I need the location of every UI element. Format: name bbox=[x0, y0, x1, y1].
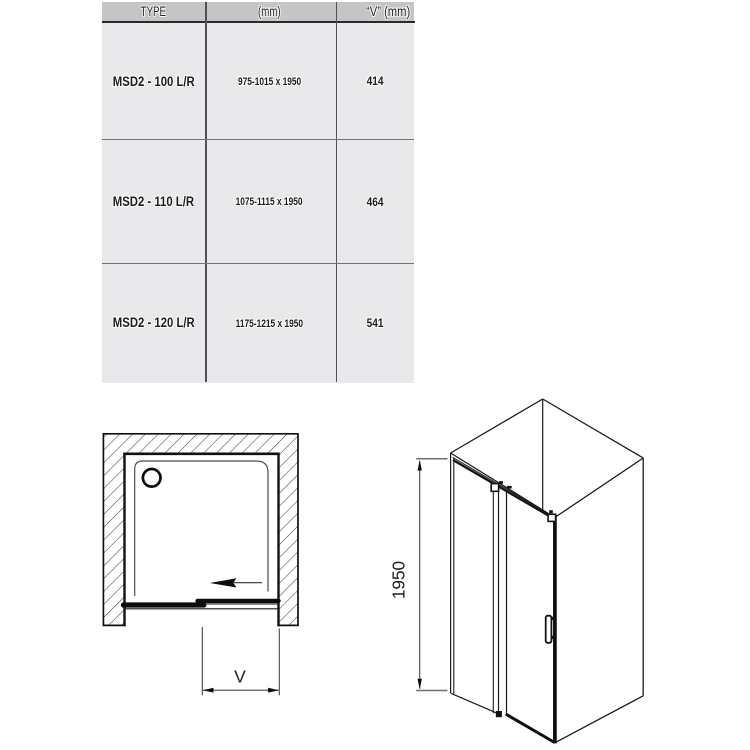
svg-text:1950: 1950 bbox=[388, 561, 408, 599]
